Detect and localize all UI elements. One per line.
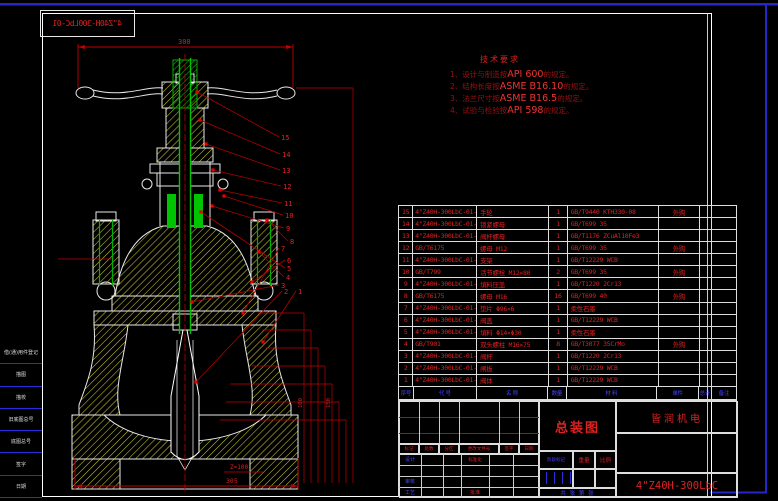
margin-strip-label: 描图 xyxy=(0,364,42,386)
bom-cell-no: 5 xyxy=(399,327,413,338)
bom-cell-name: 螺母 M12 xyxy=(477,242,549,253)
bom-cell-code: GB/T6175 xyxy=(413,290,477,301)
bom-row: 14 4"Z40H-300LbC-01-11 锁紧螺母 1 GB/T699 35 xyxy=(399,218,736,230)
bom-cell-name: 闸板 xyxy=(477,363,549,374)
bom-cell-code: 4"Z40H-300LbC-01-03 xyxy=(413,351,477,362)
dim-side-a-label: 100 xyxy=(298,398,304,408)
scale-label: 比例 xyxy=(595,451,616,469)
svg-text:1: 1 xyxy=(298,288,302,296)
mirrored-drawing-number: 4"Z40H-300LbC-01 xyxy=(53,19,122,28)
bom-cell-no: 11 xyxy=(399,254,413,265)
bom-cell-qty: 1 xyxy=(549,278,567,289)
svg-text:4: 4 xyxy=(286,274,290,282)
bom-cell-extra xyxy=(712,339,736,350)
bom-cell-unit xyxy=(700,290,712,301)
bom-cell-remark xyxy=(659,351,700,362)
bom-cell-code: GB/T6175 xyxy=(413,242,477,253)
bom-cell-extra xyxy=(712,206,736,217)
bom-rows: 15 4"Z40H-300LbC-01-12 手轮 1 GB/T9440 KTH… xyxy=(399,206,736,387)
bom-cell-qty: 1 xyxy=(549,363,567,374)
bom-cell-qty: 1 xyxy=(549,327,567,338)
bom-cell-qty: 16 xyxy=(549,290,567,301)
margin-strip-label: 描校 xyxy=(0,387,42,409)
bom-cell-remark: 外购 xyxy=(659,290,700,301)
bom-cell-qty: 8 xyxy=(549,339,567,350)
material-mark-cell xyxy=(616,433,738,473)
bom-row: 11 4"Z40H-300LbC-01-09 支架 1 GB/T12229 WC… xyxy=(399,254,736,266)
bom-cell-qty: 1 xyxy=(549,351,567,362)
bom-cell-code: 4"Z40H-300LbC-01-04 xyxy=(413,327,477,338)
bom-header-remark: 备注 xyxy=(712,387,736,399)
bom-cell-no: 12 xyxy=(399,242,413,253)
bom-cell-extra xyxy=(712,230,736,241)
bom-cell-name: 阀杆 xyxy=(477,351,549,362)
bom-header-total: 总计 xyxy=(699,387,712,399)
bom-cell-no: 10 xyxy=(399,266,413,277)
stage-ticks-cell xyxy=(539,469,573,488)
bom-cell-unit xyxy=(700,242,712,253)
rev-header-sign: 签字 xyxy=(499,444,519,454)
bom-cell-qty: 1 xyxy=(549,315,567,326)
title-block: 标记 处数 分区 更改文件号 签字 日期 设计 标准化 审核 工艺 批准 总装图… xyxy=(398,400,737,497)
bom-cell-remark: 外购 xyxy=(659,206,700,217)
bom-cell-material: 柔性石墨 xyxy=(568,303,659,314)
bom-cell-code: 4"Z40H-300LbC-01-12 xyxy=(413,206,477,217)
bom-cell-material: GB/T9440 KTH330-08 xyxy=(568,206,659,217)
bom-cell-code: 4"Z40H-300LbC-01-02 xyxy=(413,363,477,374)
bom-cell-material: 柔性石墨 xyxy=(568,327,659,338)
bom-cell-material: GB/T1220 2Cr13 xyxy=(568,278,659,289)
bom-row: 9 4"Z40H-300LbC-01-08 填料压盖 1 GB/T1220 2C… xyxy=(399,278,736,290)
notes-title: 技术要求 xyxy=(480,54,635,65)
sig-standardize-label: 标准化 xyxy=(461,454,489,465)
svg-text:13: 13 xyxy=(282,167,290,175)
bom-cell-code: 4"Z40H-300LbC-01-11 xyxy=(413,218,477,229)
bom-cell-qty: 1 xyxy=(549,230,567,241)
bom-cell-code: GB/T799 xyxy=(413,266,477,277)
bom-cell-qty: 1 xyxy=(549,254,567,265)
bom-cell-unit xyxy=(700,315,712,326)
bom-cell-qty: 1 xyxy=(549,242,567,253)
bom-cell-unit xyxy=(700,363,712,374)
bom-header-code: 代 号 xyxy=(414,387,477,399)
rev-header-zone: 分区 xyxy=(439,444,459,454)
bom-cell-qty: 1 xyxy=(549,218,567,229)
bom-cell-code: 4"Z40H-300LbC-01-06 xyxy=(413,315,477,326)
bom-cell-code: 4"Z40H-300LbC-01-09 xyxy=(413,254,477,265)
bom-cell-code: 4"Z40H-300LbC-01-08 xyxy=(413,278,477,289)
bom-cell-material: GB/T3077 35CrMo xyxy=(568,339,659,350)
bom-header-no: 序号 xyxy=(399,387,414,399)
bom-row: 3 4"Z40H-300LbC-01-03 阀杆 1 GB/T1220 2Cr1… xyxy=(399,351,736,363)
bom-cell-name: 阀盖 xyxy=(477,315,549,326)
margin-strip-label: 日期 xyxy=(0,476,42,498)
bom-cell-extra xyxy=(712,303,736,314)
bom-header-qty: 数量 xyxy=(548,387,567,399)
bom-cell-no: 1 xyxy=(399,375,413,386)
bom-cell-code: GB/T901 xyxy=(413,339,477,350)
bom-cell-unit xyxy=(700,351,712,362)
bom-cell-remark xyxy=(659,315,700,326)
bom-cell-extra xyxy=(712,327,736,338)
bom-cell-name: 填料压盖 xyxy=(477,278,549,289)
bom-cell-qty: 1 xyxy=(549,206,567,217)
bom-cell-unit xyxy=(700,254,712,265)
bom-cell-no: 13 xyxy=(399,230,413,241)
bom-row: 5 4"Z40H-300LbC-01-04 填料 Φ14×Φ30 1 柔性石墨 xyxy=(399,327,736,339)
bom-cell-material: GB/T699 35 xyxy=(568,242,659,253)
bom-cell-unit xyxy=(700,266,712,277)
bom-row: 7 4"Z40H-300LbC-01-07 垫片 Φ96×6 1 柔性石墨 xyxy=(399,303,736,315)
bom-cell-code: 4"Z40H-300LbC-01-07 xyxy=(413,303,477,314)
bom-cell-name: 双头螺柱 M16×75 xyxy=(477,339,549,350)
bom-cell-unit xyxy=(700,327,712,338)
notes-line: 1、设计与制造按API 600的规定。 xyxy=(450,69,635,81)
bom-cell-material: GB/T12229 WCB xyxy=(568,363,659,374)
rev-header-docno: 更改文件号 xyxy=(459,444,499,454)
bom-cell-remark xyxy=(659,278,700,289)
bom-row: 2 4"Z40H-300LbC-01-02 闸板 1 GB/T12229 WCB xyxy=(399,363,736,375)
bom-cell-remark xyxy=(659,327,700,338)
bom-cell-name: 阀体 xyxy=(477,375,549,386)
bom-cell-remark xyxy=(659,363,700,374)
svg-text:8: 8 xyxy=(290,238,294,246)
bom-cell-extra xyxy=(712,363,736,374)
bom-cell-remark xyxy=(659,230,700,241)
notes-line: 3、法兰尺寸按ASME B16.5的规定。 xyxy=(450,93,635,105)
bom-cell-name: 垫片 Φ96×6 xyxy=(477,303,549,314)
sig-design-label: 设计 xyxy=(399,454,421,465)
bom-cell-remark xyxy=(659,303,700,314)
bom-cell-material: GB/T699 35 xyxy=(568,266,659,277)
margin-strip-label: 签字 xyxy=(0,453,42,475)
sheet-info: 共 张 第 张 xyxy=(539,488,616,498)
svg-text:15: 15 xyxy=(281,134,289,142)
dim-bottom-label: 305 xyxy=(226,477,238,485)
bom-cell-material: GB/T12229 WCB xyxy=(568,254,659,265)
bom-row: 15 4"Z40H-300LbC-01-12 手轮 1 GB/T9440 KTH… xyxy=(399,206,736,218)
bom-header-name: 名 称 xyxy=(477,387,548,399)
svg-text:9: 9 xyxy=(286,225,290,233)
drawing-number: 4"Z40H-300LbC xyxy=(616,473,738,498)
bom-cell-name: 支架 xyxy=(477,254,549,265)
dim-top-label: 300 xyxy=(178,38,191,46)
bom-cell-name: 螺母 M16 xyxy=(477,290,549,301)
bom-row: 6 4"Z40H-300LbC-01-06 阀盖 1 GB/T12229 WCB xyxy=(399,315,736,327)
bom-cell-no: 6 xyxy=(399,315,413,326)
bom-cell-no: 15 xyxy=(399,206,413,217)
bom-cell-qty: 2 xyxy=(549,266,567,277)
svg-text:14: 14 xyxy=(282,151,290,159)
stage-mark-label: 阶段标记 xyxy=(539,451,573,469)
bom-cell-extra xyxy=(712,351,736,362)
mirrored-drawing-number-box: 4"Z40H-300LbC-01 xyxy=(40,10,135,37)
svg-text:11: 11 xyxy=(284,200,292,208)
bom-cell-name: 阀杆螺母 xyxy=(477,230,549,241)
weight-value-cell xyxy=(573,469,595,488)
bom-row: 1 4"Z40H-300LbC-01-01 阀体 1 GB/T12229 WCB xyxy=(399,375,736,387)
bom-row: 8 GB/T6175 螺母 M16 16 GB/T699 40 外购 xyxy=(399,290,736,302)
bom-cell-no: 7 xyxy=(399,303,413,314)
bom-cell-extra xyxy=(712,315,736,326)
scale-value-cell xyxy=(595,469,616,488)
svg-text:12: 12 xyxy=(283,183,291,191)
sig-process-label: 工艺 xyxy=(399,487,421,498)
company-name: 皆润机电 xyxy=(616,401,738,433)
bom-header-material: 材 料 xyxy=(567,387,658,399)
bom-cell-extra xyxy=(712,218,736,229)
bom-cell-remark xyxy=(659,254,700,265)
bom-row: 13 4"Z40H-300LbC-01-10 阀杆螺母 1 GB/T1176 Z… xyxy=(399,230,736,242)
rev-header-date: 日期 xyxy=(519,444,539,454)
bom-table: 15 4"Z40H-300LbC-01-12 手轮 1 GB/T9440 KTH… xyxy=(398,205,737,400)
bom-cell-unit xyxy=(700,218,712,229)
bom-cell-extra xyxy=(712,375,736,386)
bom-cell-qty: 1 xyxy=(549,303,567,314)
svg-text:2: 2 xyxy=(284,288,288,296)
rev-header-mark: 标记 xyxy=(399,444,419,454)
notes-lines: 1、设计与制造按API 600的规定。 2、结构长度按ASME B16.10的规… xyxy=(450,69,635,117)
svg-text:6: 6 xyxy=(287,257,291,265)
bom-cell-remark xyxy=(659,218,700,229)
wedge-note-label: Z=100 xyxy=(230,464,248,471)
bom-cell-no: 3 xyxy=(399,351,413,362)
bom-cell-material: GB/T1176 ZCuAl10Fe3 xyxy=(568,230,659,241)
balloon-numbers: 15 14 13 12 11 10 9 8 7 6 5 4 3 2 1 xyxy=(281,134,302,296)
rev-header-count: 处数 xyxy=(419,444,439,454)
margin-strip-label: 借(通)用件登记 xyxy=(0,342,42,364)
bom-cell-qty: 1 xyxy=(549,375,567,386)
bom-cell-remark: 外购 xyxy=(659,266,700,277)
left-margin-strip: 借(通)用件登记描图描校旧底图总号底图总号签字日期 xyxy=(0,342,42,498)
bom-cell-code: 4"Z40H-300LbC-01-01 xyxy=(413,375,477,386)
bom-cell-unit xyxy=(700,339,712,350)
bom-cell-material: GB/T12229 WCB xyxy=(568,315,659,326)
bom-cell-name: 锁紧螺母 xyxy=(477,218,549,229)
bom-cell-unit xyxy=(700,303,712,314)
bom-cell-name: 活节螺栓 M12×80 xyxy=(477,266,549,277)
notes-line: 2、结构长度按ASME B16.10的规定。 xyxy=(450,81,635,93)
bom-cell-remark: 外购 xyxy=(659,339,700,350)
svg-text:5: 5 xyxy=(287,265,291,273)
bom-cell-extra xyxy=(712,242,736,253)
bom-cell-unit xyxy=(700,278,712,289)
bom-cell-material: GB/T12229 WCB xyxy=(568,375,659,386)
bom-cell-unit xyxy=(700,230,712,241)
bom-cell-code: 4"Z40H-300LbC-01-10 xyxy=(413,230,477,241)
bom-cell-unit xyxy=(700,375,712,386)
bom-cell-no: 9 xyxy=(399,278,413,289)
bom-row: 4 GB/T901 双头螺柱 M16×75 8 GB/T3077 35CrMo … xyxy=(399,339,736,351)
bom-row: 12 GB/T6175 螺母 M12 1 GB/T699 35 外购 xyxy=(399,242,736,254)
bom-cell-unit xyxy=(700,206,712,217)
cad-drawing-canvas: 300 305 100 150 Z=100 15 14 13 12 11 10 … xyxy=(0,0,778,501)
revision-area xyxy=(399,401,539,444)
dim-side-b-label: 150 xyxy=(326,398,332,408)
bom-header-row: 序号 代 号 名 称 数量 材 料 单件 总计 备注 xyxy=(399,387,736,399)
technical-notes: 技术要求 1、设计与制造按API 600的规定。 2、结构长度按ASME B16… xyxy=(450,54,635,117)
bom-cell-name: 填料 Φ14×Φ30 xyxy=(477,327,549,338)
bom-cell-material: GB/T699 35 xyxy=(568,218,659,229)
weight-label: 重量 xyxy=(573,451,595,469)
svg-text:10: 10 xyxy=(285,212,293,220)
sig-approve-label: 批准 xyxy=(461,487,489,498)
bom-cell-name: 手轮 xyxy=(477,206,549,217)
svg-text:7: 7 xyxy=(281,245,285,253)
bom-cell-no: 8 xyxy=(399,290,413,301)
bom-cell-remark xyxy=(659,375,700,386)
bom-cell-extra xyxy=(712,254,736,265)
bom-row: 10 GB/T799 活节螺栓 M12×80 2 GB/T699 35 外购 xyxy=(399,266,736,278)
margin-strip-label: 底图总号 xyxy=(0,431,42,453)
bom-cell-no: 14 xyxy=(399,218,413,229)
drawing-title: 总装图 xyxy=(539,401,616,451)
bom-cell-material: GB/T1220 2Cr13 xyxy=(568,351,659,362)
bom-cell-extra xyxy=(712,290,736,301)
notes-line: 4、试验与检验按API 598的规定。 xyxy=(450,105,635,117)
bom-cell-extra xyxy=(712,266,736,277)
bom-cell-no: 4 xyxy=(399,339,413,350)
bom-cell-no: 2 xyxy=(399,363,413,374)
margin-strip-label: 旧底图总号 xyxy=(0,409,42,431)
bom-cell-extra xyxy=(712,278,736,289)
bom-header-unit: 单件 xyxy=(657,387,699,399)
bom-cell-material: GB/T699 40 xyxy=(568,290,659,301)
bom-cell-remark: 外购 xyxy=(659,242,700,253)
sig-check-label: 审核 xyxy=(399,476,421,487)
